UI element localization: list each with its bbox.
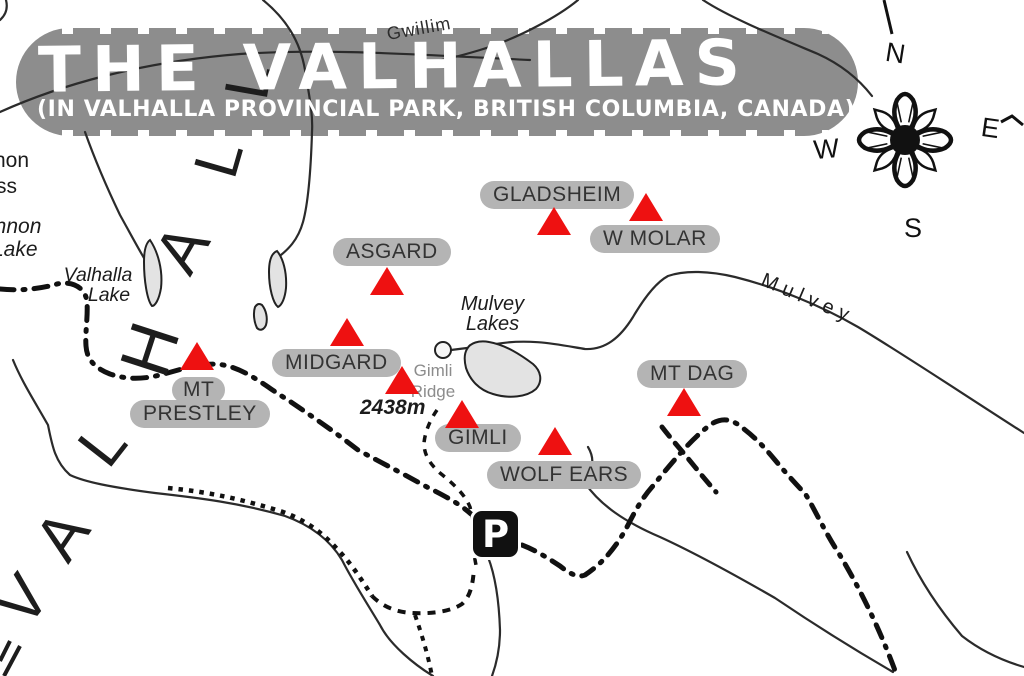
peak-triangle-icon-w-molar (629, 193, 663, 221)
big-letter: L (65, 410, 141, 480)
mulvey-creek-line (496, 272, 1024, 433)
edge-label-fragment: non (0, 150, 29, 171)
gimli-ridge-elevation: 2438m (360, 397, 425, 418)
peak-label-wolf-ears: WOLF EARS (487, 461, 641, 489)
peak-label-w-molar: W MOLAR (590, 225, 720, 253)
peak-triangle-icon-gimli (445, 400, 479, 428)
small-pond-shape (435, 342, 451, 358)
trail-dashed (372, 568, 474, 613)
trail-dotted (168, 488, 372, 596)
peak-triangle-icon-midgard (330, 318, 364, 346)
map-subtitle: (IN VALHALLA PROVINCIAL PARK, BRITISH CO… (37, 97, 855, 122)
creek-line (0, 0, 7, 20)
trail-dashed (662, 427, 716, 492)
edge-label-fragment: ss (0, 176, 17, 197)
big-letter: L (181, 133, 257, 185)
valhalla-lake-label-line1: Valhalla (48, 266, 148, 286)
big-valhalla-letters: L L A H L A V (0, 58, 286, 676)
compass-south-label: S (904, 213, 922, 243)
mulvey-lakes-label-line2: Lakes (445, 314, 540, 334)
lake-channel (451, 348, 467, 350)
trail-dash-dot (522, 420, 897, 676)
creek-line (85, 132, 144, 258)
valhallas-map: L L A H L A V Gwillim (0, 0, 1024, 676)
edge-label-lake-line1: innon (0, 216, 41, 237)
peak-label-midgard: MIDGARD (272, 349, 401, 377)
peak-label-mt-dag: MT DAG (637, 360, 747, 388)
peak-triangle-icon-mt-prestley (180, 342, 214, 370)
peak-triangle-icon-asgard (370, 267, 404, 295)
compass-east-label: E (979, 112, 1001, 144)
peak-triangle-icon-mt-dag (667, 388, 701, 416)
valhalla-lake-label: Valhalla Lake (48, 266, 148, 305)
parking-icon: P (473, 511, 518, 557)
big-letter-fragment (0, 641, 20, 676)
peak-triangle-icon-gladsheim (537, 207, 571, 235)
big-letter: V (0, 561, 64, 639)
peak-triangle-icon-wolf-ears (538, 427, 572, 455)
compass-west-label: W (812, 133, 841, 165)
big-letter: A (20, 497, 104, 573)
mulvey-lakes-label: Mulvey Lakes (445, 294, 540, 334)
peak-label-mt-prestley-line2: PRESTLEY (130, 400, 270, 428)
valhalla-lake-label-line2: Lake (70, 286, 148, 306)
mulvey-lakes-label-line1: Mulvey (445, 294, 540, 314)
peak-label-gimli: GIMLI (435, 424, 521, 452)
creek-line (488, 557, 500, 676)
edge-label-lake-line2: Lake (0, 239, 38, 260)
creek-line (907, 552, 1024, 667)
compass-north-label: N (883, 37, 907, 70)
map-title: THE VALHALLAS (38, 26, 752, 106)
peak-label-asgard: ASGARD (333, 238, 451, 266)
small-lake-shape (269, 251, 286, 307)
small-lake-shape (254, 304, 267, 330)
mulvey-lake-shape (465, 341, 541, 396)
peak-triangle-icon-gimli-ridge (385, 366, 419, 394)
peak-label-gladsheim: GLADSHEIM (480, 181, 634, 209)
